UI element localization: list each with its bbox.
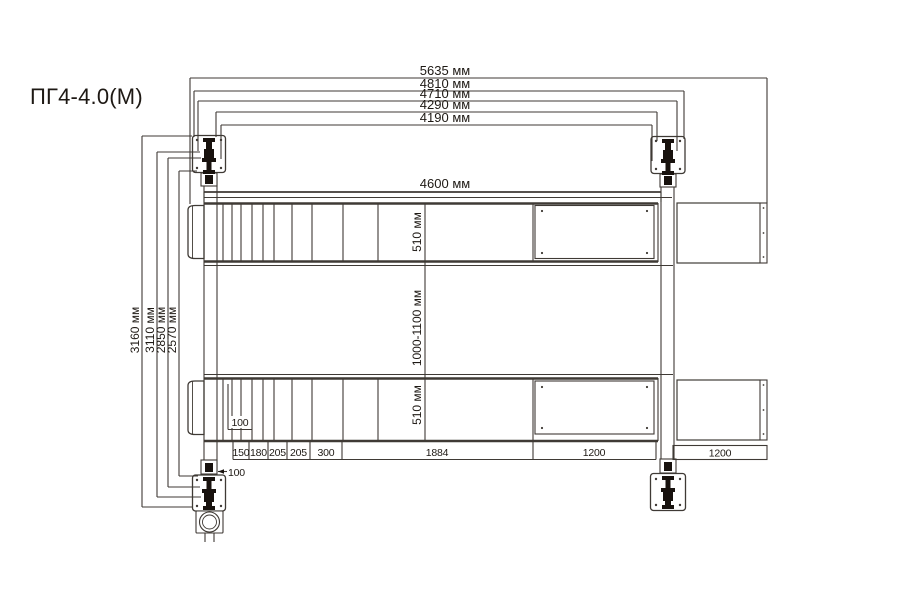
dim-track-gap-label: 1000-1100 мм bbox=[410, 290, 424, 366]
hydraulic-unit-box bbox=[196, 511, 223, 533]
post-top-right bbox=[651, 137, 685, 176]
dim-cell-1884: 1884 bbox=[426, 447, 449, 459]
four-post-lift-drawing: ПГ4-4.0(М) bbox=[0, 0, 900, 600]
bottom-runway bbox=[188, 375, 673, 442]
dim-runway-width-top-label: 510 мм bbox=[410, 212, 424, 252]
top-runway bbox=[188, 198, 673, 266]
bottom-ramp bbox=[677, 380, 767, 440]
hydraulic-unit bbox=[196, 511, 223, 542]
dim-runway-width-bottom-label: 510 мм bbox=[410, 385, 424, 425]
dim-top-5: 4190 мм bbox=[221, 110, 652, 161]
dim-bottom-strip: 150 180 205 205 300 1884 1200 bbox=[233, 442, 656, 460]
dim-left-4-label: 2570 мм bbox=[165, 307, 179, 354]
dim-cell-205b: 205 bbox=[290, 447, 307, 459]
top-runway-panel bbox=[535, 206, 654, 259]
dim-top-5-label: 4190 мм bbox=[420, 110, 470, 125]
top-ramp bbox=[677, 203, 767, 263]
dim-cell-180: 180 bbox=[250, 447, 267, 459]
dim-cell-150: 150 bbox=[233, 447, 250, 459]
dim-ramp-length-label: 1200 bbox=[709, 448, 732, 460]
offset-runway-label: 100 bbox=[232, 417, 249, 429]
dim-top-1: 5635 мм bbox=[190, 63, 767, 204]
dim-cell-205a: 205 bbox=[269, 447, 286, 459]
post-bottom-right bbox=[651, 474, 686, 511]
drawing-canvas: ПГ4-4.0(М) bbox=[0, 0, 900, 600]
dim-cell-300: 300 bbox=[318, 447, 335, 459]
bottom-runway-bumper bbox=[188, 381, 204, 435]
bottom-ramp-outer bbox=[677, 380, 767, 440]
offset-post-label: 100 bbox=[228, 467, 245, 479]
post-bottom-left bbox=[193, 475, 226, 542]
drawing-title: ПГ4-4.0(М) bbox=[30, 84, 143, 109]
top-ramp-outer bbox=[677, 203, 767, 263]
right-column bbox=[660, 174, 676, 473]
dim-runway-length-label: 4600 мм bbox=[420, 176, 470, 191]
dim-ramp-length: 1200 bbox=[673, 446, 767, 460]
dim-center: 510 мм 1000-1100 мм 510 мм bbox=[410, 203, 425, 441]
bottom-runway-panel bbox=[535, 381, 654, 434]
top-runway-bumper bbox=[188, 206, 204, 259]
dim-left-1-label: 3160 мм bbox=[128, 307, 142, 354]
dim-cell-1200: 1200 bbox=[583, 447, 606, 459]
dim-runway-length: 4600 мм bbox=[204, 176, 661, 202]
